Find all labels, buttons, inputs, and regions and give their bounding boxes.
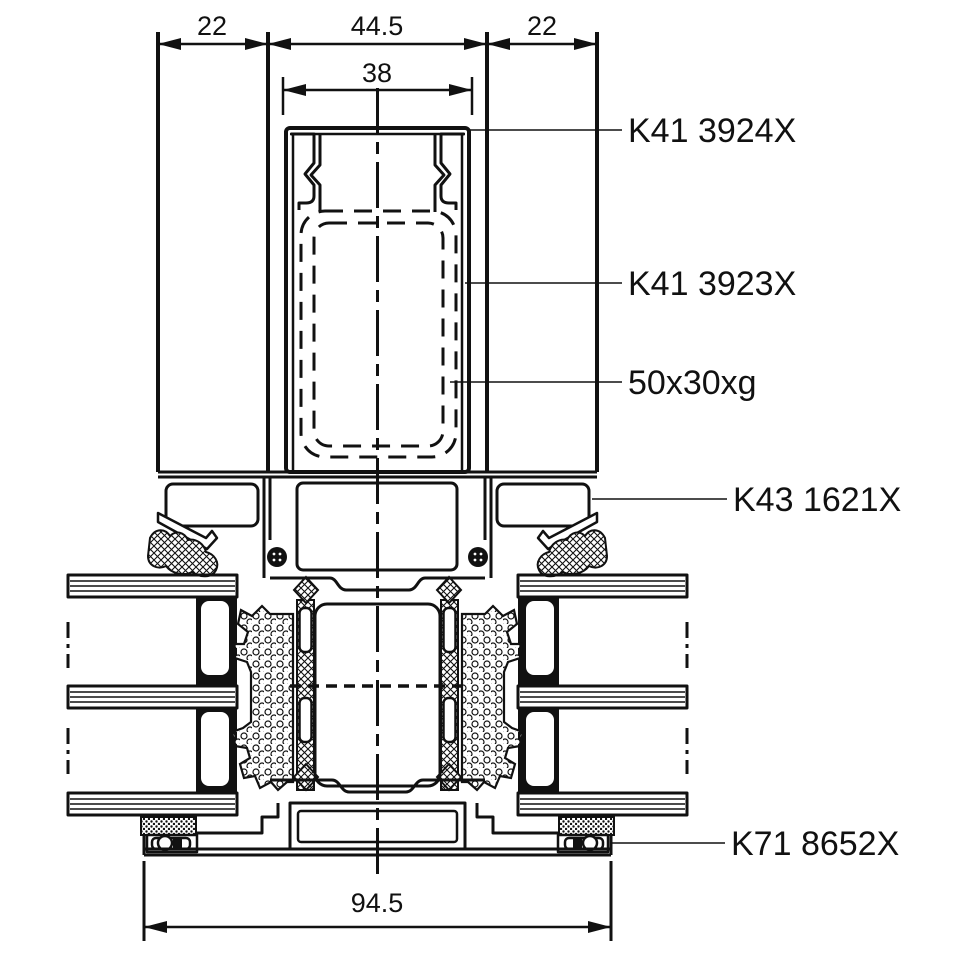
arrowhead — [245, 38, 268, 50]
cap-channel-outer — [291, 134, 314, 210]
dot-highlight — [273, 553, 276, 556]
arrowhead — [283, 84, 306, 96]
dot-highlight — [273, 559, 276, 562]
label-glazing-gasket: K71 8652X — [731, 825, 899, 863]
label-steel-reinforcement: 50x30xg — [628, 364, 757, 402]
dot-highlight — [279, 553, 282, 556]
glass-pane-lamination — [70, 799, 235, 809]
arrowhead — [574, 38, 597, 50]
dimension-top: 22 44.5 22 — [158, 11, 597, 50]
glass-pane-lamination — [70, 581, 235, 591]
dimension-38: 38 — [283, 58, 472, 96]
gasket-block — [173, 837, 182, 849]
glass-pane-lamination — [70, 692, 235, 702]
arrowhead — [449, 84, 472, 96]
glazing-unit — [68, 575, 237, 815]
technical-drawing-page: 22 44.5 22 38 94.5 K41 3924X K41 3923X 5… — [0, 0, 960, 960]
transom-flange-cavity — [166, 484, 258, 526]
dim-value-94-5: 94.5 — [351, 888, 404, 918]
arrowhead — [588, 921, 611, 933]
part-labels: K41 3924X K41 3923X 50x30xg K43 1621X K7… — [450, 112, 901, 863]
foam-insulator — [232, 606, 293, 790]
right-half-mirrored — [435, 32, 687, 855]
section-drawing: 22 44.5 22 38 94.5 K41 3924X K41 3923X 5… — [0, 0, 960, 960]
arrowhead — [158, 38, 181, 50]
arrowhead — [487, 38, 510, 50]
spacer-cavity — [201, 712, 229, 786]
label-transom-profile: K43 1621X — [733, 481, 901, 519]
screw-channel-dot — [267, 547, 287, 567]
dim-value-22-right: 22 — [527, 11, 557, 41]
strip-window — [300, 608, 312, 652]
dot-highlight — [279, 559, 282, 562]
arrowhead — [464, 38, 487, 50]
left-half-geometry — [68, 32, 320, 855]
spacer-cavity — [201, 601, 229, 675]
arrowhead — [144, 921, 167, 933]
dim-value-44-5: 44.5 — [351, 11, 404, 41]
dim-value-22-left: 22 — [197, 11, 227, 41]
label-glazing-bead-profile: K41 3923X — [628, 265, 796, 303]
setting-block — [141, 817, 196, 835]
arrowhead — [268, 38, 291, 50]
strip-window — [300, 698, 312, 742]
dim-value-38: 38 — [362, 58, 392, 88]
label-cap-profile: K41 3924X — [628, 112, 796, 150]
